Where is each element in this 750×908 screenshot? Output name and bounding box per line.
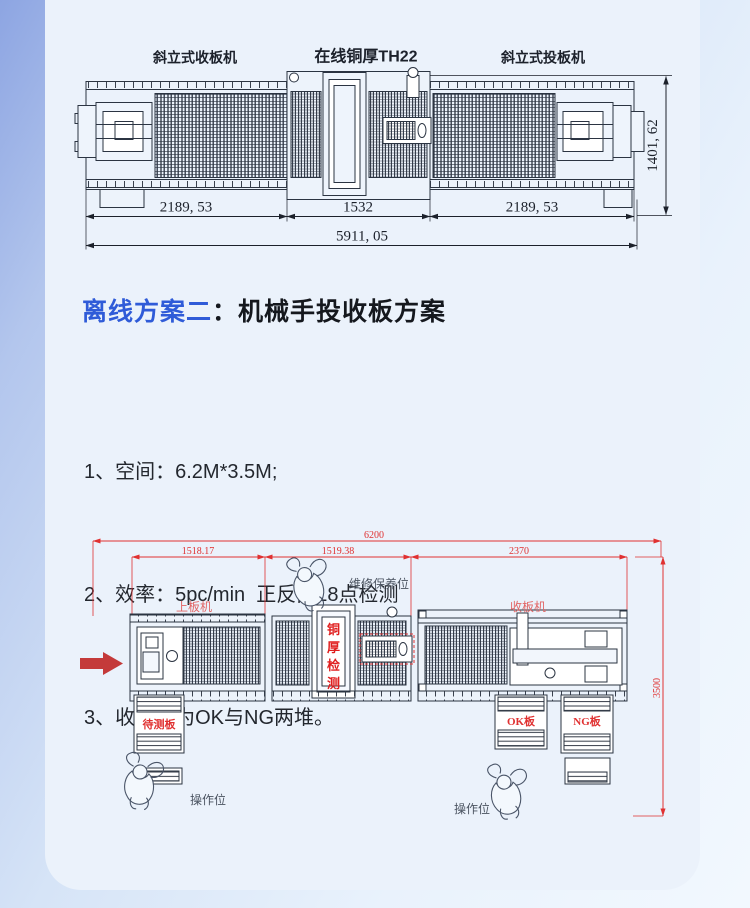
svg-text:厚: 厚 [327, 640, 340, 655]
label-maintenance-position: 维修保养位 [349, 576, 409, 591]
label-loader: 上板机 [176, 600, 212, 614]
dim-layout-seg1: 1518.17 [182, 546, 215, 557]
machine-front-view-drawing: 斜立式收板机 在线铜厚TH22 斜立式投板机 [75, 38, 675, 256]
center-tester-panel [287, 68, 431, 200]
dim-layout-total: 6200 [364, 530, 384, 541]
label-collect-machine: 斜立式收板机 [152, 50, 237, 66]
worker-figure-right-operator [487, 761, 531, 821]
front-view-machine-body [75, 68, 644, 208]
right-end-unit [557, 103, 644, 161]
dim-left-width: 2189, 53 [160, 200, 213, 216]
dim-right-width: 2189, 53 [506, 200, 559, 216]
dim-total-width: 5911, 05 [336, 229, 388, 245]
label-pending-board: 待测板 [142, 717, 177, 731]
ng-board-cart [561, 695, 613, 784]
heading-highlight: 离线方案二 [82, 298, 212, 326]
label-operator-right: 操作位 [454, 801, 490, 816]
dim-machine-height: 1401, 62 [645, 119, 661, 172]
right-foot [604, 190, 632, 208]
svg-text:测: 测 [327, 676, 340, 691]
svg-text:铜: 铜 [326, 622, 340, 637]
tester-section [272, 605, 414, 701]
dim-center-width: 1532 [343, 200, 373, 216]
front-view-svg: 斜立式收板机 在线铜厚TH22 斜立式投板机 [75, 38, 675, 256]
flow-direction-arrow-icon [80, 652, 123, 675]
dim-layout-seg3: 2370 [509, 546, 529, 557]
left-foot [100, 190, 144, 208]
section-heading: 离线方案二：机械手投收板方案 [82, 292, 446, 328]
heading-rest: ：机械手投收板方案 [212, 298, 446, 326]
spec-item-space: 1、空间：6.2M*3.5M; [84, 452, 399, 493]
svg-text:检: 检 [327, 658, 340, 673]
collector-machine [418, 610, 627, 701]
layout-machines [130, 605, 627, 784]
label-operator-left: 操作位 [190, 792, 226, 807]
top-view-svg: 6200 1518.17 1519.38 2370 3500 [80, 528, 680, 828]
label-inline-tester-title: 在线铜厚TH22 [314, 47, 417, 66]
label-ok-board: OK板 [507, 714, 536, 728]
right-roller-grid [433, 94, 555, 178]
machine-top-view-layout-drawing: 6200 1518.17 1519.38 2370 3500 [80, 528, 680, 828]
label-collector: 收板机 [510, 600, 546, 614]
page-background: 斜立式收板机 在线铜厚TH22 斜立式投板机 [0, 0, 750, 908]
left-roller-grid [155, 94, 287, 178]
label-ng-board: NG板 [573, 714, 602, 728]
dim-layout-seg2: 1519.38 [322, 546, 355, 557]
label-feed-machine: 斜立式投板机 [500, 50, 585, 66]
dim-layout-depth: 3500 [652, 678, 663, 698]
loader-machine [130, 614, 265, 701]
left-end-unit [75, 103, 152, 161]
